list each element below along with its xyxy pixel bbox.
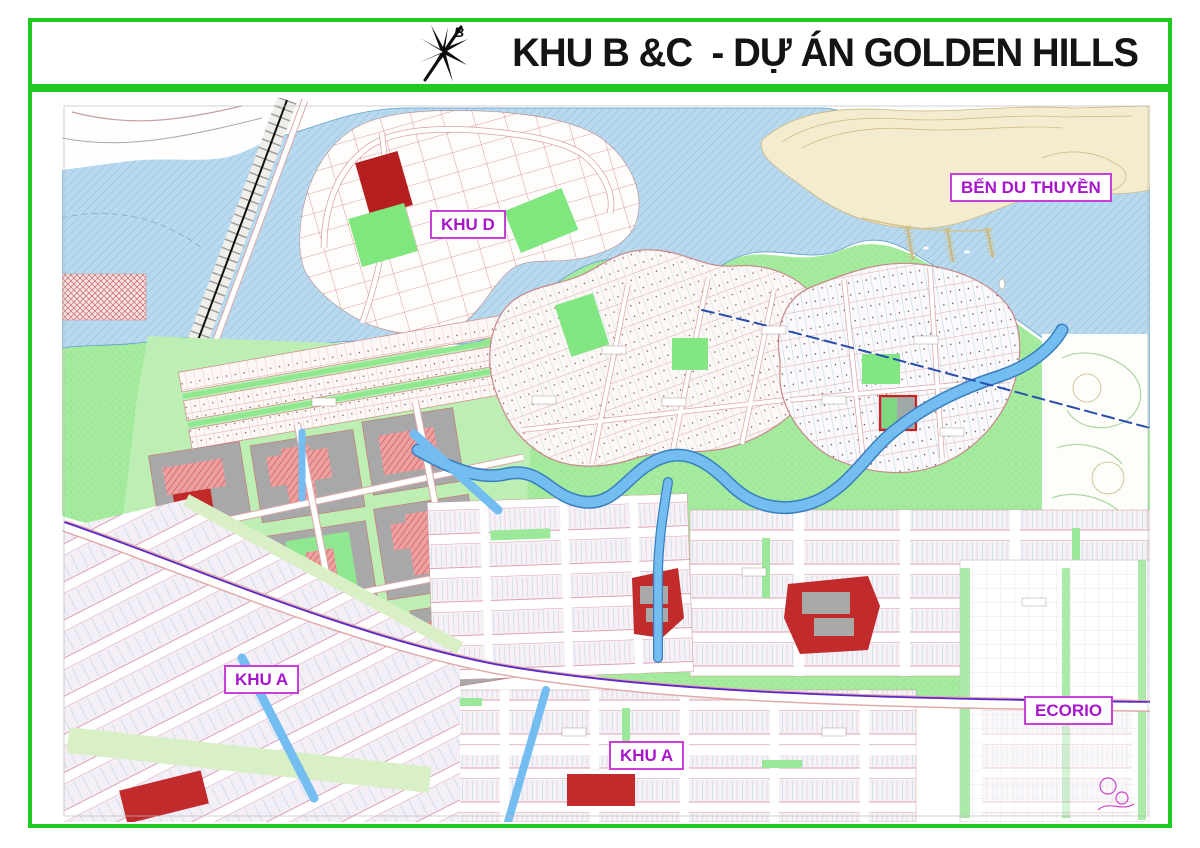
label-ben-du-thuyen: BẾN DU THUYỀN bbox=[950, 173, 1112, 202]
label-ecorio: ECORIO bbox=[1024, 696, 1113, 725]
label-khu-a-west: KHU A bbox=[224, 665, 299, 694]
hatched-zone-west bbox=[62, 274, 146, 320]
page: B KHU B &C - DỰ ÁN GOLDEN HILLS bbox=[0, 0, 1200, 848]
header-bar: B KHU B &C - DỰ ÁN GOLDEN HILLS bbox=[28, 18, 1172, 88]
brand: B KHU B &C - DỰ ÁN GOLDEN HILLS bbox=[416, 22, 1138, 84]
ecorio-zone bbox=[960, 560, 1150, 822]
star-logo-icon: B bbox=[416, 22, 472, 84]
label-khu-d: KHU D bbox=[430, 210, 506, 239]
south-red-block bbox=[567, 774, 635, 806]
label-khu-a-south: KHU A bbox=[609, 741, 684, 770]
master-plan-map bbox=[62, 98, 1150, 822]
page-title: KHU B &C - DỰ ÁN GOLDEN HILLS bbox=[512, 31, 1138, 76]
logo-letter: B bbox=[454, 24, 464, 40]
map-frame: KHU D BẾN DU THUYỀN KHU A KHU A ECORIO bbox=[28, 88, 1172, 828]
